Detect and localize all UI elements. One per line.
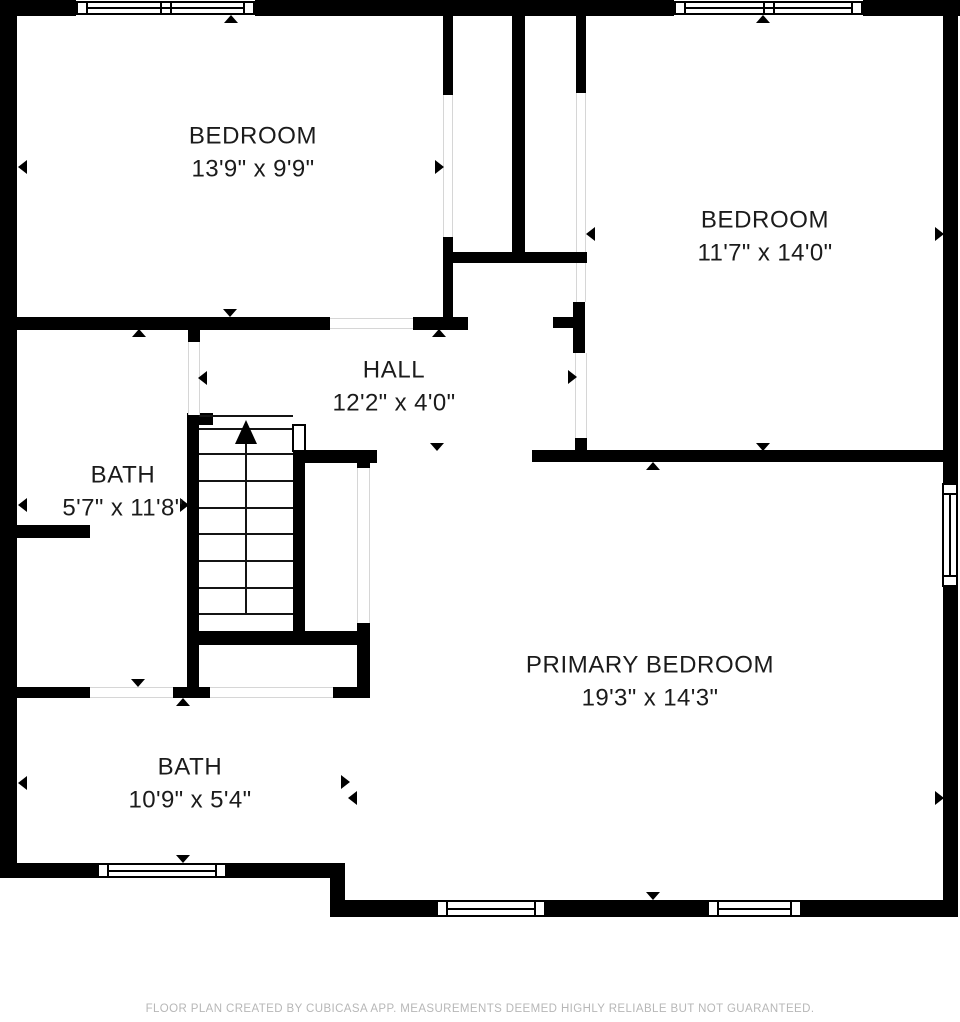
room-dims: 10'9" x 5'4" [128,787,251,815]
wall-segment [255,0,674,16]
door-marker-triangle [935,227,944,241]
window [674,1,863,15]
window [436,900,546,917]
door-marker-triangle [223,309,237,317]
door-marker-triangle [18,776,27,790]
door-jamb-line [452,95,453,237]
wall-segment [187,631,357,645]
window-mullion [170,3,172,13]
room-name: BATH [62,462,183,490]
room-dims: 19'3" x 14'3" [526,685,774,713]
footer-disclaimer: FLOOR PLAN CREATED BY CUBICASA APP. MEAS… [0,1003,960,1015]
stair-direction-arrow [245,440,247,613]
door-opening [210,687,333,698]
door-marker-triangle [131,679,145,687]
room-dims: 11'7" x 14'0" [697,240,832,268]
door-jamb-line [585,263,586,302]
window-pane-line [108,870,216,872]
wall-segment [443,16,453,95]
wall-segment [546,900,707,917]
floor-plan: BEDROOM13'9" x 9'9"BEDROOM11'7" x 14'0"H… [0,0,960,1022]
window [97,863,227,878]
door-opening [330,318,413,329]
wall-segment [532,450,943,462]
wall-segment [333,900,436,917]
door-marker-triangle [586,227,595,241]
room-dims: 12'2" x 4'0" [332,390,455,418]
wall-segment [573,302,585,353]
door-jamb-line [330,318,413,319]
door-marker-triangle [435,160,444,174]
door-jamb-line [586,353,587,438]
wall-segment [0,0,17,878]
wall-segment [17,687,90,698]
window-mullion [763,3,765,13]
wall-segment [17,525,90,538]
window-pane-line [87,7,244,9]
wall-segment [187,415,199,698]
window [76,1,255,15]
room-label: PRIMARY BEDROOM19'3" x 14'3" [526,652,774,713]
wall-segment [0,863,97,878]
wall-segment [227,863,345,878]
wall-segment [943,587,958,917]
door-jamb-line [188,342,189,415]
door-jamb-line [576,93,577,252]
room-label: BATH5'7" x 11'8" [62,462,183,523]
door-jamb-line [575,353,576,438]
wall-segment [333,687,370,698]
stair-top-door [292,424,306,452]
room-name: BEDROOM [697,207,832,235]
window-pane-line [718,908,791,910]
wall-segment [553,317,573,328]
door-jamb-line [330,328,413,329]
room-name: HALL [332,357,455,385]
stair-tread-line [199,613,293,615]
door-marker-triangle [176,855,190,863]
door-marker-triangle [430,443,444,451]
door-jamb-line [90,697,173,698]
door-marker-triangle [198,371,207,385]
door-opening [357,468,370,623]
door-marker-triangle [176,698,190,706]
wall-segment [293,463,305,633]
door-opening [90,687,173,698]
door-marker-triangle [568,370,577,384]
wall-segment [17,317,330,330]
door-marker-triangle [756,443,770,451]
door-jamb-line [210,687,333,688]
door-marker-triangle [224,15,238,23]
stair-top-edge [199,415,293,417]
room-name: BEDROOM [189,123,317,151]
door-marker-triangle [341,775,350,789]
door-opening [576,93,586,252]
door-marker-triangle [432,329,446,337]
door-jamb-line [576,263,577,302]
window-pane-line [447,908,535,910]
door-opening [576,263,586,302]
door-marker-triangle [348,791,357,805]
room-name: PRIMARY BEDROOM [526,652,774,680]
room-label: BATH10'9" x 5'4" [128,754,251,815]
wall-segment [188,328,200,342]
room-dims: 5'7" x 11'8" [62,495,183,523]
door-marker-triangle [756,15,770,23]
door-opening [443,95,453,237]
wall-segment [943,0,958,483]
door-marker-triangle [18,160,27,174]
stair-arrow-head [235,420,257,444]
wall-segment [576,16,586,93]
wall-segment [173,687,210,698]
door-jamb-line [369,468,370,623]
door-jamb-line [357,468,358,623]
wall-segment [802,900,958,917]
door-jamb-line [210,697,333,698]
window [942,483,958,587]
window-mullion [773,3,775,13]
window-pane-line [949,494,951,576]
door-jamb-line [90,687,173,688]
room-label: BEDROOM11'7" x 14'0" [697,207,832,268]
window [707,900,802,917]
wall-segment [443,252,587,263]
window-mullion [160,3,162,13]
room-label: BEDROOM13'9" x 9'9" [189,123,317,184]
wall-segment [512,16,525,252]
door-opening [575,353,587,438]
room-label: HALL12'2" x 4'0" [332,357,455,418]
door-marker-triangle [646,892,660,900]
door-marker-triangle [646,462,660,470]
door-marker-triangle [18,498,27,512]
room-name: BATH [128,754,251,782]
room-dims: 13'9" x 9'9" [189,156,317,184]
window-pane-line [685,7,852,9]
door-marker-triangle [132,329,146,337]
door-marker-triangle [935,791,944,805]
